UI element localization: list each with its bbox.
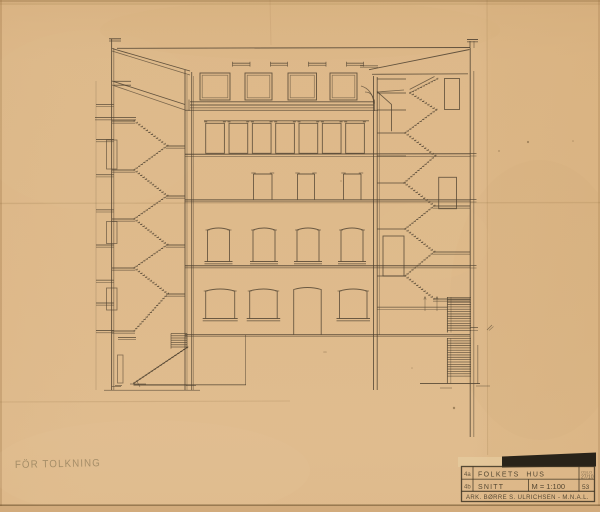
svg-text:4b: 4b xyxy=(464,485,471,491)
svg-text:ARK. BØRRE S. ULRICHSEN - M.N.: ARK. BØRRE S. ULRICHSEN - M.N.A.L. xyxy=(466,495,589,501)
svg-text:53: 53 xyxy=(582,484,590,491)
svg-text:FOLKETS HUS: FOLKETS HUS xyxy=(478,472,545,479)
svg-text:4a: 4a xyxy=(464,472,471,478)
svg-text:M = 1:100: M = 1:100 xyxy=(532,482,566,491)
svg-text:FÖR TOLKNING: FÖR TOLKNING xyxy=(15,457,101,471)
svg-text:SNITT: SNITT xyxy=(478,484,504,491)
svg-text:27/10: 27/10 xyxy=(581,474,594,480)
